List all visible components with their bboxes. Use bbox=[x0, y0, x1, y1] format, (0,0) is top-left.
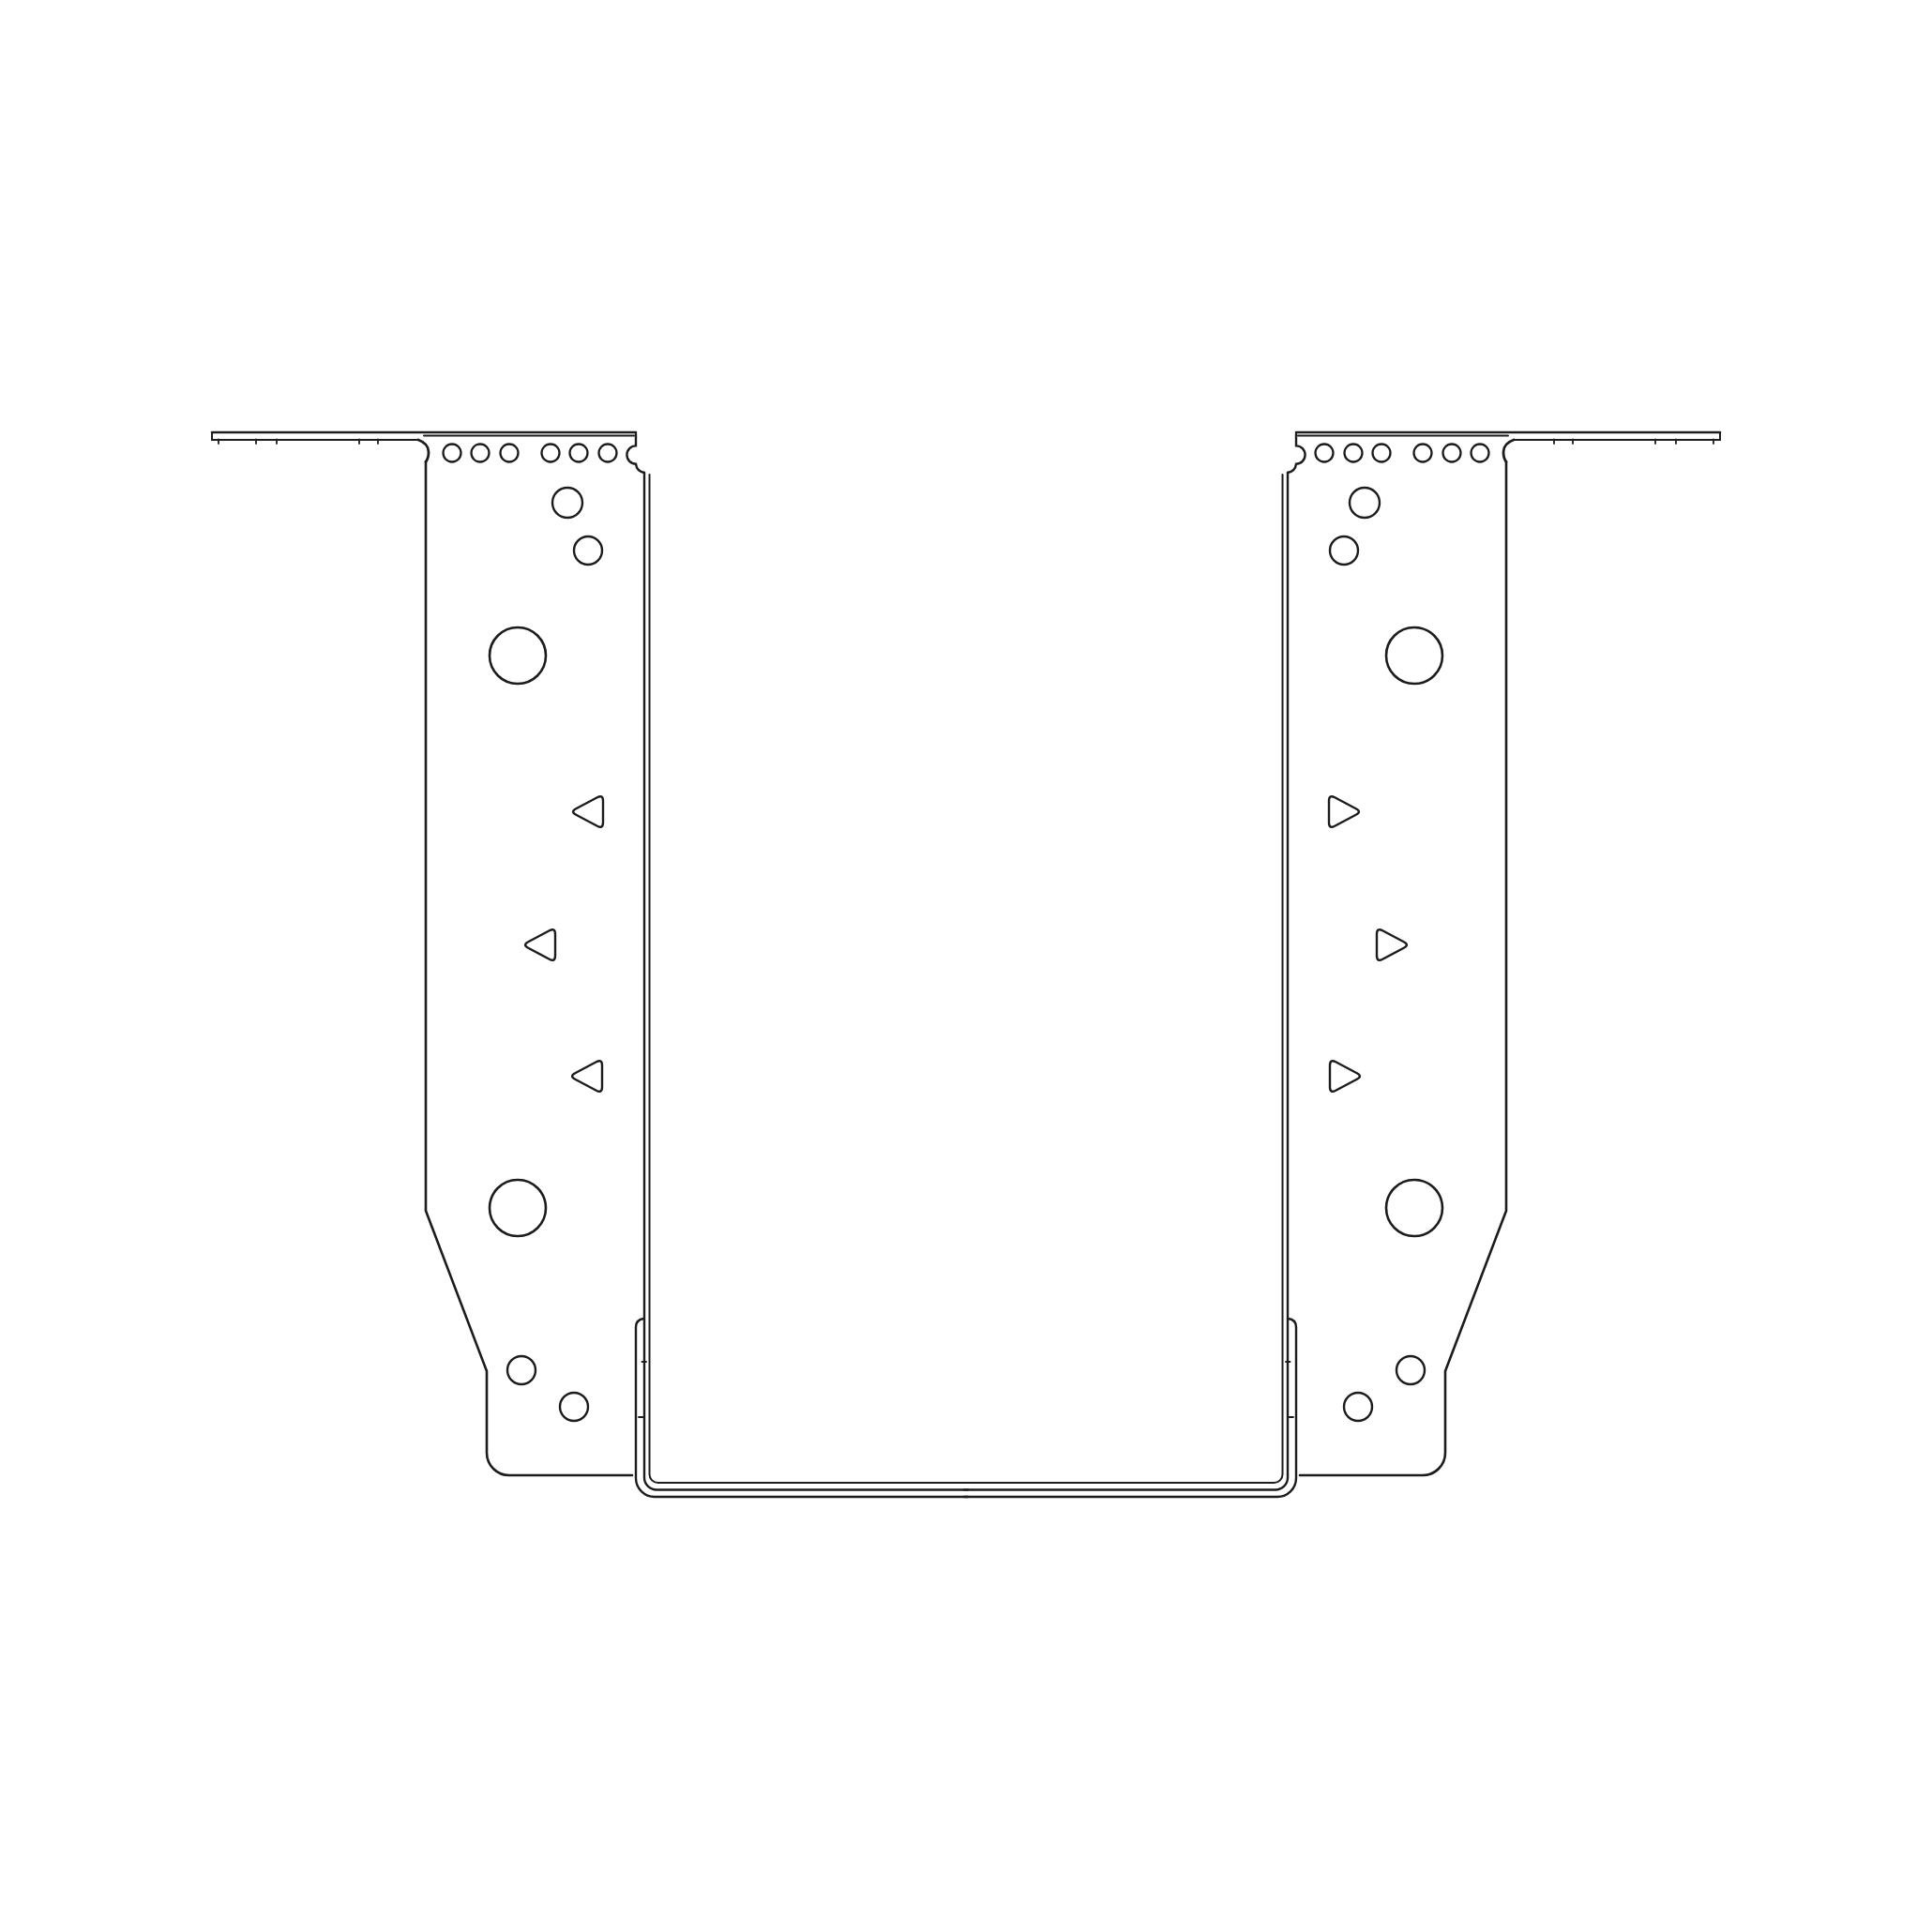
flange-bend-hook bbox=[1503, 440, 1514, 462]
plate-outer-outline bbox=[1300, 461, 1506, 1475]
plate-inner-edge-scallop bbox=[1288, 434, 1306, 473]
triangle-nail-tab bbox=[1329, 796, 1359, 827]
flange-nail-hole bbox=[1345, 445, 1363, 462]
flange-nail-hole bbox=[444, 445, 461, 462]
triangle-nail-tab bbox=[572, 1061, 602, 1092]
flange-bend-hook bbox=[418, 440, 429, 462]
flange-nail-hole bbox=[570, 445, 588, 462]
flange-nail-hole bbox=[472, 445, 490, 462]
nail-hole bbox=[552, 488, 582, 518]
nail-hole bbox=[1350, 488, 1380, 518]
flange-nail-hole bbox=[501, 445, 519, 462]
nail-hole bbox=[560, 1393, 588, 1421]
channel-bend-line-inner bbox=[650, 475, 969, 1483]
channel-bend-line-outer bbox=[964, 473, 1288, 1490]
drawing-canvas: Front elevation line drawing of a U-shap… bbox=[0, 0, 1932, 1932]
bolt-hole bbox=[1386, 627, 1442, 684]
joist-hanger-line-drawing: Front elevation line drawing of a U-shap… bbox=[0, 0, 1932, 1932]
bolt-hole bbox=[490, 1180, 546, 1236]
triangle-nail-tab bbox=[525, 929, 555, 960]
channel-bend-line-inner bbox=[964, 475, 1283, 1483]
flange-nail-hole bbox=[542, 445, 560, 462]
nail-hole bbox=[1344, 1393, 1372, 1421]
nail-hole bbox=[507, 1356, 536, 1384]
bolt-hole bbox=[490, 627, 546, 684]
seat-tab-line bbox=[636, 1319, 968, 1497]
flange-nail-hole bbox=[1373, 445, 1391, 462]
plate-outer-outline bbox=[426, 461, 632, 1475]
triangle-nail-tab bbox=[1330, 1061, 1360, 1092]
nail-hole bbox=[574, 536, 602, 565]
triangle-nail-tab bbox=[1377, 929, 1407, 960]
plate-inner-edge-scallop bbox=[626, 434, 644, 473]
channel-bend-line-outer bbox=[644, 473, 968, 1490]
left-side-stirrup bbox=[212, 432, 968, 1497]
nail-hole bbox=[1330, 536, 1358, 565]
seat-tab-line bbox=[964, 1319, 1296, 1497]
bolt-hole bbox=[1386, 1180, 1442, 1236]
flange-nail-hole bbox=[1414, 445, 1432, 462]
flange-nail-hole bbox=[1316, 445, 1334, 462]
right-side-stirrup bbox=[964, 432, 1720, 1497]
flange-nail-hole bbox=[1472, 445, 1489, 462]
flange-nail-hole bbox=[1443, 445, 1461, 462]
nail-hole bbox=[1396, 1356, 1425, 1384]
flange-nail-hole bbox=[599, 445, 617, 462]
triangle-nail-tab bbox=[573, 796, 603, 827]
